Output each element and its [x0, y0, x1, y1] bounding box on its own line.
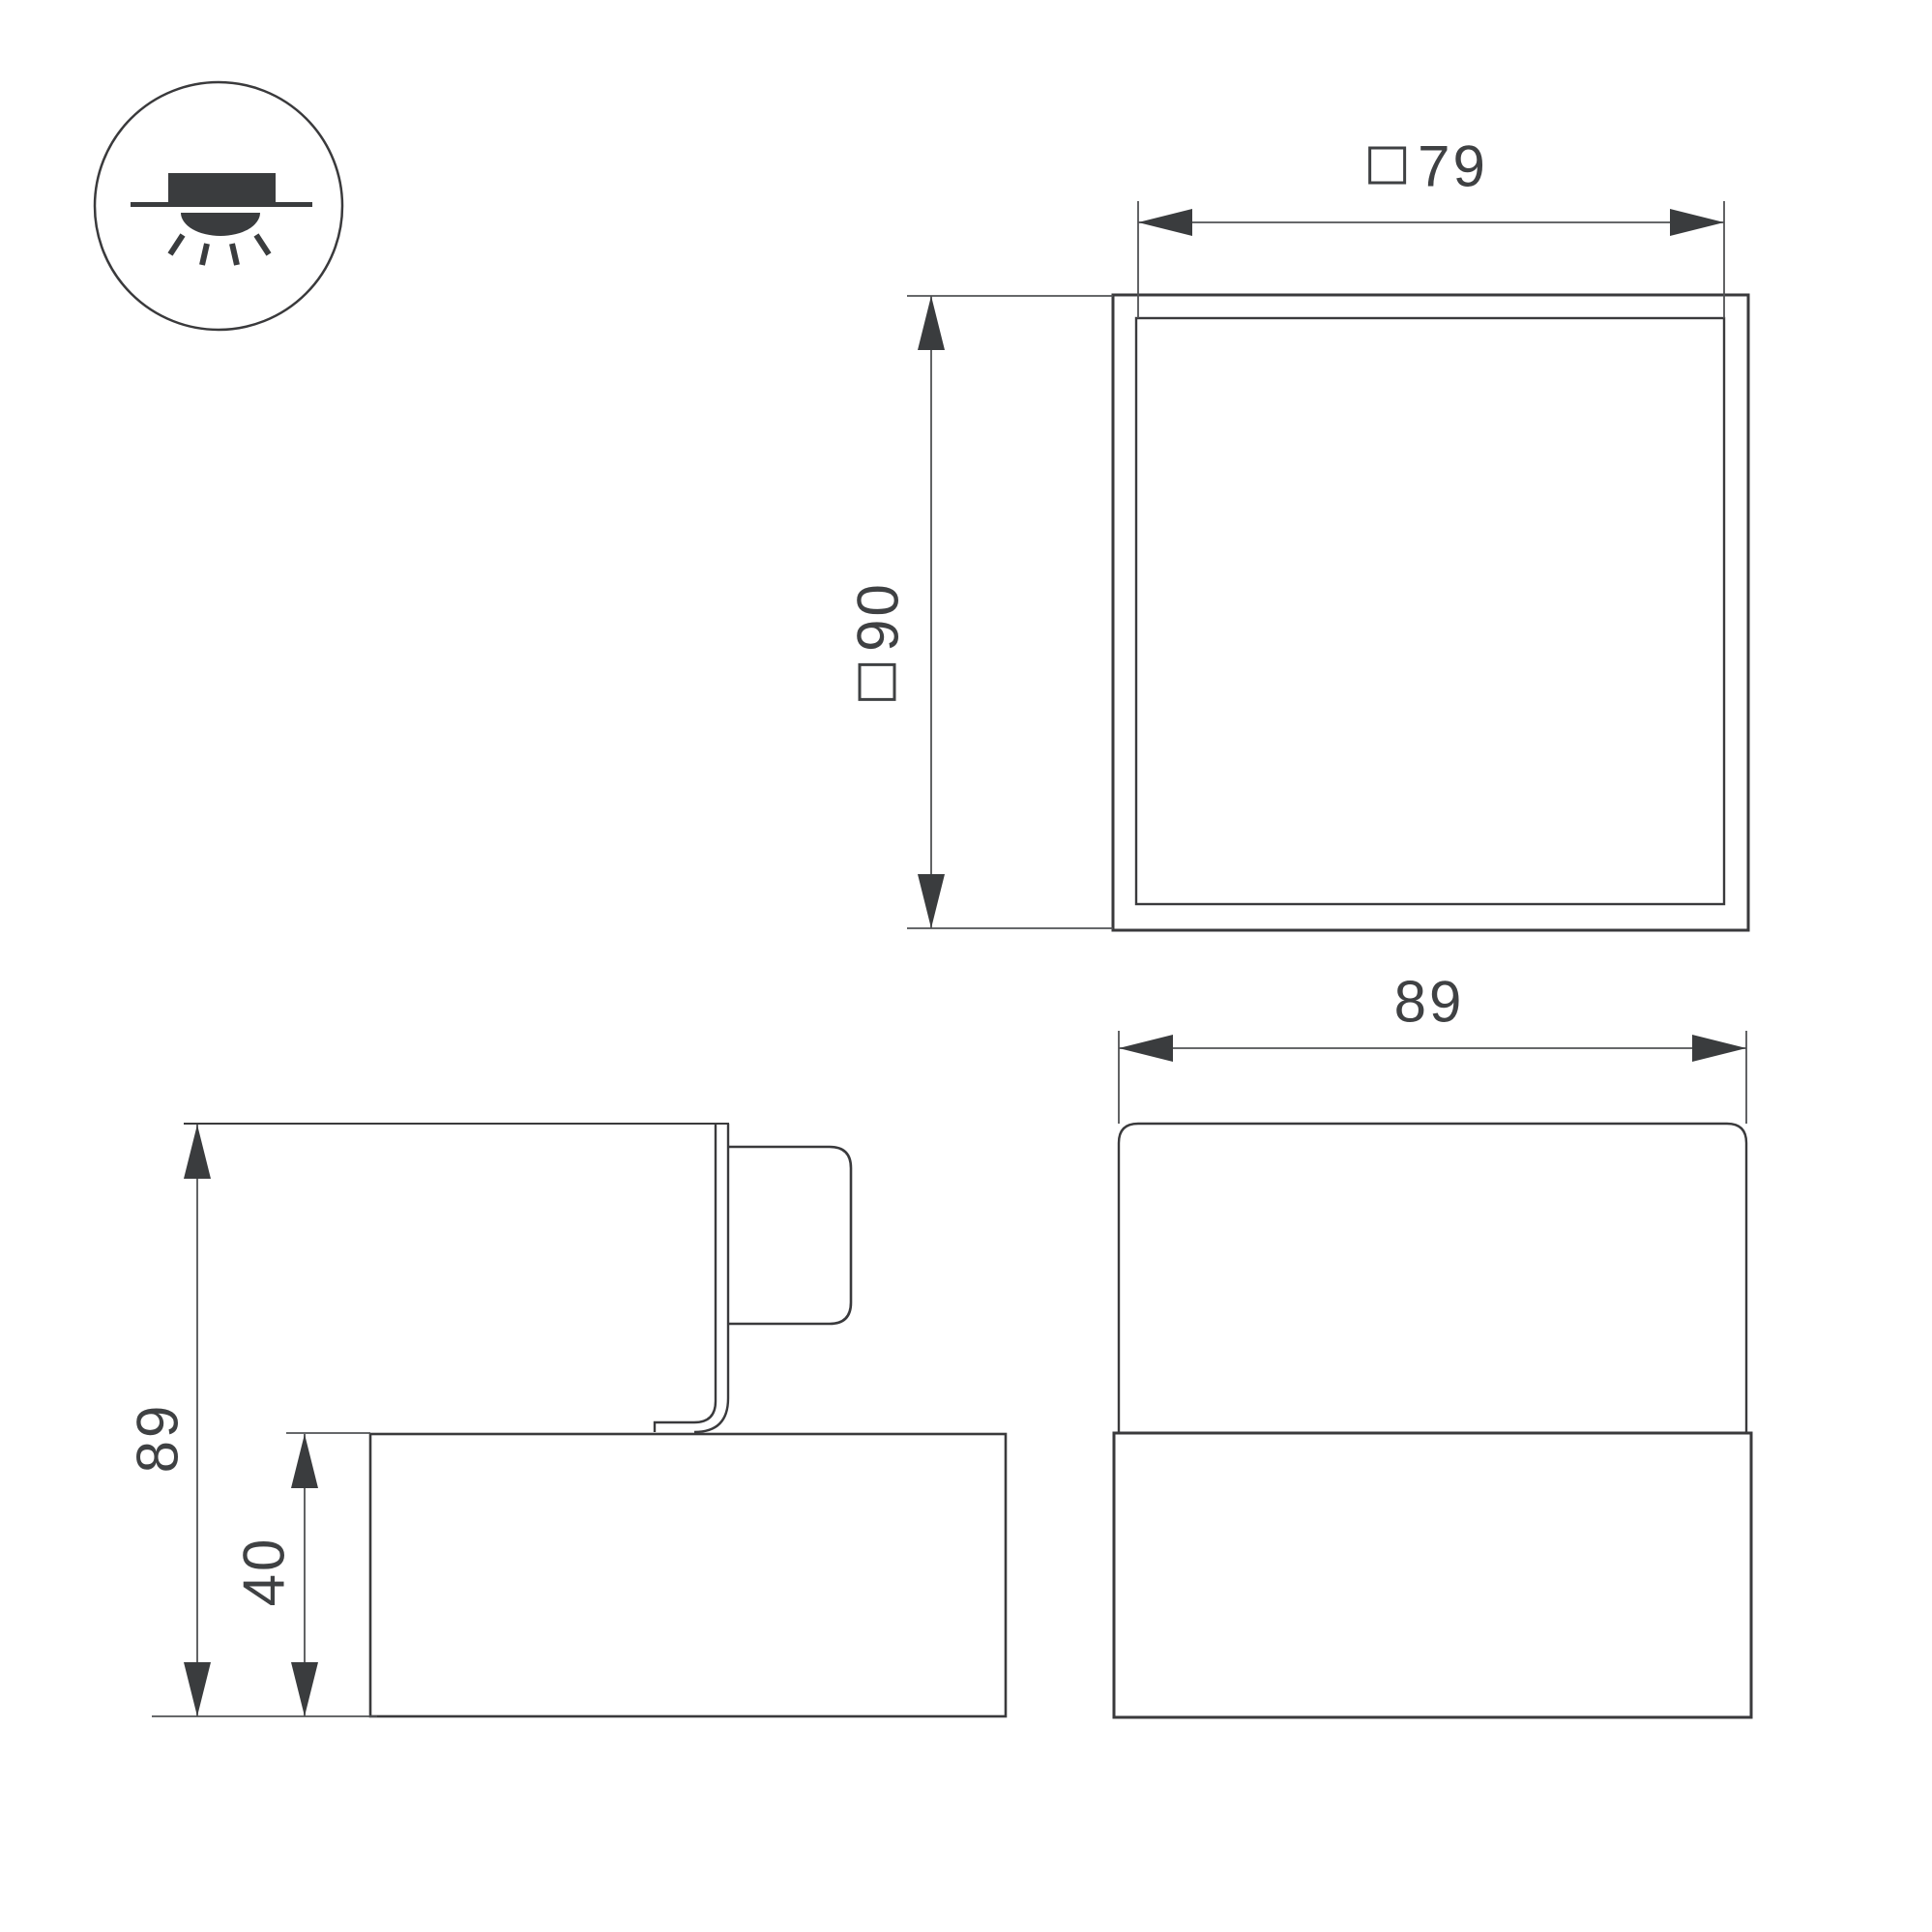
icon-lamp-dome: [181, 213, 260, 236]
dim-79-arrow-left: [1138, 209, 1192, 236]
dim-79-value: 79: [1418, 133, 1488, 200]
dim-89-side-arrow-bottom: [184, 1662, 211, 1716]
dim-40-arrow-bottom: [291, 1662, 318, 1716]
dim-40-label: 40: [231, 1537, 298, 1607]
square-section-symbol: [1368, 147, 1406, 185]
dim-79-label: 79: [1368, 133, 1488, 200]
icon-light-rays: [170, 235, 269, 265]
icon-ceiling-line: [131, 202, 312, 207]
dim-89-front-arrow-left: [1119, 1035, 1173, 1062]
side-mount-plate-outer: [655, 1124, 716, 1432]
dim-89-side-value: 89: [125, 1403, 191, 1474]
dim-89-front-label: 89: [1394, 969, 1465, 1036]
dim-90-value: 90: [845, 581, 912, 652]
dim-79-lines: [1138, 201, 1724, 318]
dim-89-side-label: 89: [125, 1403, 191, 1474]
side-view: [152, 1124, 1006, 1716]
square-section-symbol: [859, 663, 896, 701]
dim-89-front-lines: [1119, 1031, 1746, 1124]
dim-90-label: 90: [845, 581, 912, 701]
top-view-inner-square: [1136, 318, 1724, 904]
dim-90-arrow-top: [918, 296, 945, 350]
front-body: [1114, 1433, 1751, 1717]
front-view: [1114, 1031, 1751, 1717]
dim-89-front-arrow-right: [1692, 1035, 1746, 1062]
front-head: [1119, 1124, 1746, 1433]
top-view-outer-square: [1113, 295, 1748, 930]
mount-type-icon: [95, 82, 342, 330]
dim-40-value: 40: [231, 1537, 298, 1607]
drawing-linework: [0, 0, 1932, 1932]
side-body: [370, 1434, 1006, 1716]
top-view: [907, 201, 1748, 930]
dimension-drawing: 79 90 89 40 89: [0, 0, 1932, 1932]
icon-housing: [168, 173, 276, 204]
side-clip: [728, 1147, 851, 1324]
dim-89-front-value: 89: [1394, 969, 1465, 1036]
dim-79-arrow-right: [1670, 209, 1724, 236]
dim-89-side-arrow-top: [184, 1125, 211, 1179]
dim-90-lines: [907, 296, 1113, 928]
dim-40-arrow-top: [291, 1434, 318, 1488]
side-mount-plate-inner: [694, 1124, 728, 1432]
dim-90-arrow-bottom: [918, 874, 945, 928]
